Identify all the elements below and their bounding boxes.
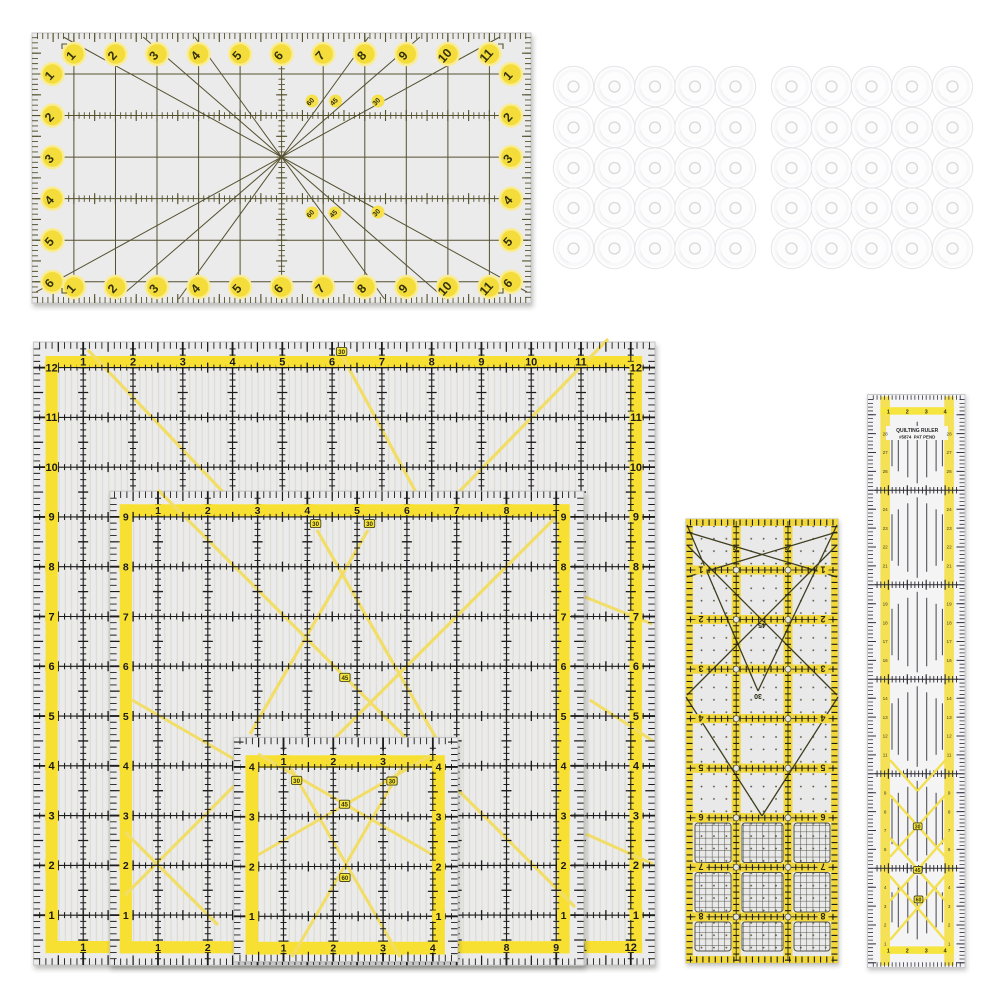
svg-text:8: 8 [504,505,510,517]
svg-text:2: 2 [249,861,255,873]
svg-text:5: 5 [820,763,825,773]
svg-text:17: 17 [947,639,953,644]
svg-text:10: 10 [45,462,57,474]
svg-text:4: 4 [229,357,236,369]
svg-text:8: 8 [633,562,639,574]
svg-text:1: 1 [887,949,890,955]
svg-text:5: 5 [698,763,703,773]
svg-text:8: 8 [698,911,703,921]
svg-text:21: 21 [947,564,953,569]
svg-text:30: 30 [293,778,300,785]
svg-text:12: 12 [883,734,889,739]
svg-text:10: 10 [525,357,537,369]
svg-text:24: 24 [883,507,889,512]
svg-text:4: 4 [123,761,129,773]
svg-text:3: 3 [180,357,186,369]
svg-text:10: 10 [630,462,642,474]
svg-text:#5874 PAT PEND: #5874 PAT PEND [899,435,935,440]
svg-text:3: 3 [49,810,55,822]
svg-text:7: 7 [698,862,703,872]
svg-text:45: 45 [915,868,921,874]
svg-text:7: 7 [49,611,55,623]
svg-text:3: 3 [255,505,261,517]
svg-text:3: 3 [820,664,825,674]
svg-text:30: 30 [312,521,319,528]
svg-text:4: 4 [944,949,947,955]
svg-text:4: 4 [698,713,703,723]
svg-text:1: 1 [123,910,129,922]
svg-text:11: 11 [630,412,642,424]
svg-text:8: 8 [123,562,129,574]
svg-text:16: 16 [947,658,953,663]
svg-text:3: 3 [561,810,567,822]
svg-text:13: 13 [947,715,953,720]
svg-text:11: 11 [947,753,952,758]
svg-text:8: 8 [820,911,825,921]
svg-text:7: 7 [884,828,887,833]
svg-text:11: 11 [46,412,58,424]
svg-text:23: 23 [883,526,889,531]
svg-text:1: 1 [281,756,287,768]
svg-text:26: 26 [947,469,953,474]
svg-text:QUILTING RULER: QUILTING RULER [896,428,939,434]
svg-text:6: 6 [561,661,567,673]
svg-text:22: 22 [883,545,889,550]
svg-text:2: 2 [698,614,703,624]
svg-text:9: 9 [948,790,951,795]
svg-text:14: 14 [883,696,889,701]
svg-text:2: 2 [820,614,825,624]
svg-text:8: 8 [49,562,55,574]
svg-text:9: 9 [633,512,639,524]
svg-text:1: 1 [49,910,55,922]
svg-text:3: 3 [884,904,887,909]
svg-text:28: 28 [947,431,953,436]
svg-text:2: 2 [436,861,442,873]
svg-text:7: 7 [948,828,951,833]
svg-text:2: 2 [906,409,909,415]
svg-text:9: 9 [553,942,559,954]
svg-text:8: 8 [429,357,435,369]
svg-text:1: 1 [887,409,890,415]
svg-text:6: 6 [948,847,951,852]
svg-text:4: 4 [436,761,442,773]
svg-text:6: 6 [884,847,887,852]
svg-text:16: 16 [883,658,889,663]
svg-text:11: 11 [883,753,888,758]
svg-text:6: 6 [123,661,129,673]
svg-text:1: 1 [155,505,161,517]
svg-text:1: 1 [436,911,442,923]
svg-text:2: 2 [205,505,211,517]
svg-text:4: 4 [49,761,56,773]
svg-text:6: 6 [698,812,703,822]
svg-text:1: 1 [80,942,86,954]
svg-text:5: 5 [633,711,639,723]
svg-text:1: 1 [948,942,951,947]
svg-text:60: 60 [341,875,348,882]
svg-text:3: 3 [380,756,386,768]
svg-text:1: 1 [561,910,567,922]
svg-text:3: 3 [249,812,255,824]
svg-text:9: 9 [884,790,887,795]
svg-text:½: ½ [784,545,791,554]
svg-text:30: 30 [915,824,921,830]
svg-text:12: 12 [625,942,637,954]
svg-text:3: 3 [436,812,442,824]
svg-text:4: 4 [561,761,567,773]
svg-text:7: 7 [123,611,129,623]
svg-text:½: ½ [732,545,739,554]
svg-text:1: 1 [249,911,255,923]
svg-text:45: 45 [758,621,766,628]
svg-text:3: 3 [633,810,639,822]
svg-text:1: 1 [281,942,287,954]
svg-text:60: 60 [916,898,922,904]
svg-text:5: 5 [123,711,129,723]
svg-text:17: 17 [883,639,889,644]
svg-text:9: 9 [561,512,567,524]
svg-text:8: 8 [948,809,951,814]
svg-text:2: 2 [49,860,55,872]
svg-text:1: 1 [155,942,161,954]
svg-text:2: 2 [948,923,951,928]
svg-text:23: 23 [947,526,953,531]
svg-text:6: 6 [49,661,55,673]
svg-text:2: 2 [330,942,336,954]
svg-text:2: 2 [884,923,887,928]
svg-text:1: 1 [698,564,703,574]
svg-text:1: 1 [884,942,887,947]
svg-text:5: 5 [279,357,285,369]
svg-text:12: 12 [45,362,57,374]
svg-text:22: 22 [947,545,953,550]
svg-text:3: 3 [123,810,129,822]
svg-text:30: 30 [389,779,396,786]
svg-text:27: 27 [883,450,889,455]
svg-text:19: 19 [947,601,953,606]
svg-text:30: 30 [366,521,373,528]
svg-text:5: 5 [49,711,55,723]
svg-text:30: 30 [754,692,762,699]
svg-text:28: 28 [883,431,889,436]
svg-text:4: 4 [304,505,310,517]
svg-text:9: 9 [123,512,129,524]
svg-text:12: 12 [630,362,642,374]
svg-text:1: 1 [633,910,639,922]
svg-text:30: 30 [338,349,345,356]
svg-text:2: 2 [205,942,211,954]
svg-text:6: 6 [329,357,335,369]
svg-text:3: 3 [925,409,928,415]
svg-text:8: 8 [884,809,887,814]
svg-text:45: 45 [341,802,348,809]
svg-text:9: 9 [49,512,55,524]
svg-text:4: 4 [944,409,947,415]
svg-text:1: 1 [820,564,825,574]
svg-text:18: 18 [883,620,889,625]
svg-text:4: 4 [948,885,951,890]
svg-text:4: 4 [430,942,436,954]
svg-text:8: 8 [561,562,567,574]
svg-text:3: 3 [380,942,386,954]
svg-text:6: 6 [820,812,825,822]
svg-text:2: 2 [123,860,129,872]
svg-text:9: 9 [478,357,484,369]
svg-text:5: 5 [354,505,360,517]
svg-text:14: 14 [947,696,953,701]
svg-text:7: 7 [820,862,825,872]
svg-text:4: 4 [820,713,825,723]
svg-text:4: 4 [633,761,640,773]
svg-text:2: 2 [633,860,639,872]
svg-text:18: 18 [947,620,953,625]
svg-text:4: 4 [249,761,255,773]
svg-text:7: 7 [561,611,567,623]
svg-text:2: 2 [561,860,567,872]
svg-text:2: 2 [330,756,336,768]
svg-text:12: 12 [947,734,953,739]
svg-text:6: 6 [633,661,639,673]
svg-text:27: 27 [947,450,953,455]
svg-text:26: 26 [883,469,889,474]
svg-text:5: 5 [561,711,567,723]
svg-text:2: 2 [906,949,909,955]
svg-text:45: 45 [341,675,348,682]
svg-text:3: 3 [948,904,951,909]
svg-text:19: 19 [883,601,889,606]
svg-text:21: 21 [883,564,889,569]
svg-text:7: 7 [454,505,460,517]
svg-text:3: 3 [925,949,928,955]
svg-text:8: 8 [504,942,510,954]
svg-text:7: 7 [633,611,639,623]
svg-text:2: 2 [130,357,136,369]
svg-text:1: 1 [80,357,86,369]
svg-text:13: 13 [883,715,889,720]
svg-text:7: 7 [379,357,385,369]
svg-text:3: 3 [698,664,703,674]
svg-text:4: 4 [884,885,887,890]
svg-text:6: 6 [404,505,410,517]
svg-text:11: 11 [575,357,587,369]
svg-text:24: 24 [947,507,953,512]
